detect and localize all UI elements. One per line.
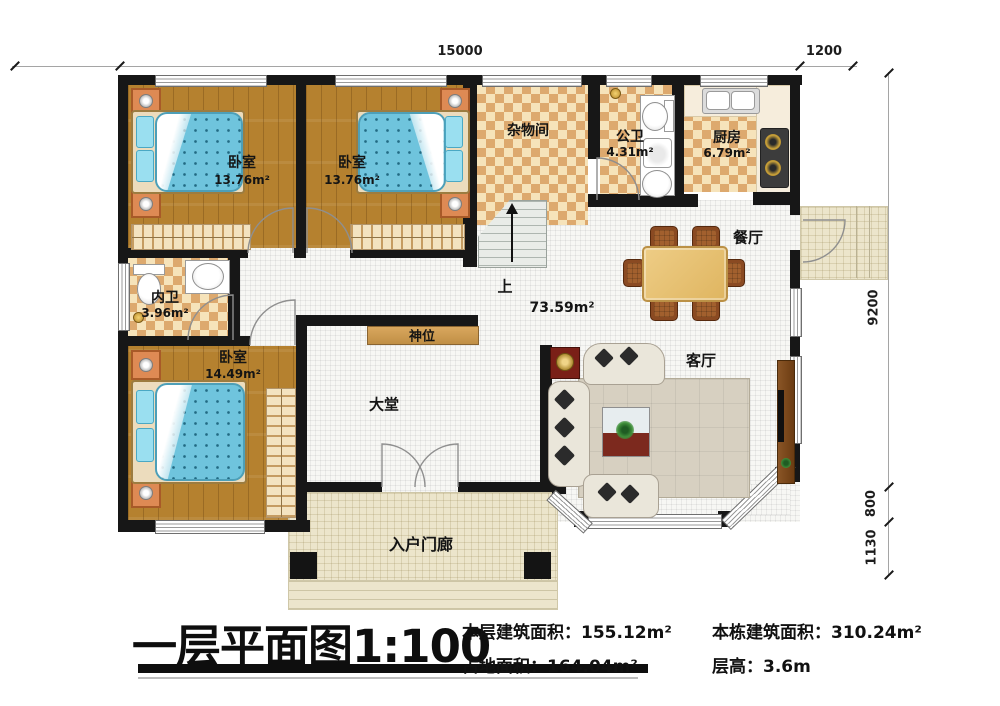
wall-hall-top (296, 315, 478, 326)
stairs-arrow-line (511, 212, 513, 262)
plant-icon (781, 458, 791, 468)
window-bath-top (606, 75, 652, 87)
porch-steps (288, 580, 558, 610)
stat-value: 164.04m² (547, 657, 638, 677)
dim-line-right (888, 72, 889, 576)
bed-sheet (385, 114, 444, 190)
kitchen-sink-basin (731, 91, 755, 110)
pillow (136, 116, 154, 148)
pillow (136, 390, 154, 424)
dining-table (642, 246, 728, 302)
pillow (445, 116, 463, 148)
storage-label: 杂物间 (507, 120, 549, 140)
kitchen-label: 厨房 (713, 127, 741, 147)
window-bedroom3-bottom (155, 520, 265, 534)
window-bedroom1-top (155, 75, 267, 87)
dining-label: 餐厅 (733, 227, 763, 248)
lamp-icon (448, 94, 462, 108)
stat-value: 310.24m² (831, 623, 922, 643)
bedroom3-area: 14.49m² (205, 367, 261, 381)
wardrobe (131, 224, 251, 250)
stat-label: 本层建筑面积： (462, 623, 581, 643)
kitchen-area: 6.79m² (703, 146, 750, 160)
terrace-floor (800, 206, 888, 280)
dim-tick (884, 517, 894, 527)
bedroom3-label: 卧室 (219, 347, 247, 367)
open-area-label: 73.59m² (529, 300, 594, 316)
wall-storage-bath (588, 85, 600, 159)
stat-building-area: 本栋建筑面积：310.24m² (712, 618, 922, 643)
lamp-icon (139, 486, 153, 500)
stove-burner (765, 134, 781, 150)
toilet-icon (642, 102, 668, 131)
public-bath-area: 4.31m² (606, 145, 653, 159)
stairs-arrow-head (506, 203, 518, 214)
dim-line-top (12, 66, 857, 67)
plant-icon (616, 421, 634, 439)
window-bedroom2-top (335, 75, 447, 87)
inner-bath-area: 3.96m² (141, 306, 188, 320)
wall-bed3-right (296, 315, 307, 532)
kitchen-sink-basin (706, 91, 730, 110)
stove-burner (765, 160, 781, 176)
terrace-rail-lines (856, 206, 870, 278)
wall-bedrooms-bottom-b (294, 248, 306, 258)
hall-label: 大堂 (369, 394, 399, 415)
stat-label: 占地面积： (462, 657, 547, 677)
bed-mattress (155, 383, 245, 481)
porch-column (290, 552, 317, 579)
wardrobe (266, 388, 296, 518)
stat-value: 155.12m² (581, 623, 672, 643)
nightstand-lamp (131, 350, 161, 380)
wall-right-b (790, 250, 800, 290)
porch-label: 入户门廊 (389, 531, 453, 555)
dim-tick (884, 68, 894, 78)
stairs-up-label: 上 (497, 276, 512, 297)
sink-icon (642, 170, 672, 198)
living-label: 客厅 (686, 350, 716, 371)
bedroom1-label: 卧室 (228, 152, 256, 172)
stat-label: 层高： (712, 657, 763, 677)
lamp-icon (448, 197, 462, 211)
stat-land-area: 占地面积：164.04m² (462, 652, 638, 677)
wall-innerbath-bottom (118, 336, 250, 346)
medallion-icon (556, 353, 574, 371)
wall-hall-bottom-left (288, 482, 382, 492)
tv-icon (778, 390, 784, 442)
stat-floor-area: 本层建筑面积：155.12m² (462, 618, 672, 643)
inner-bath-label: 内卫 (151, 287, 179, 307)
sofa-bottom (583, 474, 659, 518)
pillow (445, 150, 463, 182)
title-underline-thin (138, 677, 638, 679)
window-storage-top (482, 75, 582, 87)
pillow (136, 428, 154, 462)
dim-right-height: 9200 (867, 289, 882, 325)
sink-icon (192, 263, 224, 290)
stat-value: 3.6m (763, 657, 811, 677)
public-bath-label: 公卫 (616, 126, 644, 146)
porch-column (524, 552, 551, 579)
window-dining-right (790, 288, 802, 337)
dim-top-side: 1200 (806, 44, 842, 59)
nightstand-lamp (131, 190, 161, 218)
stat-floor-height: 层高：3.6m (712, 652, 811, 677)
bed-sheet (157, 385, 217, 479)
wall-lamp-icon (610, 88, 621, 99)
dim-right-mid: 800 (864, 490, 879, 517)
nightstand-lamp (440, 190, 470, 218)
wardrobe (350, 224, 465, 250)
pillow (136, 150, 154, 182)
wall-hall-bottom-right (458, 482, 556, 492)
floorplan-canvas: 卧室 13.76m² 卧室 13.76m² 杂物间 公卫 4.31m² 厨房 6… (0, 0, 1000, 706)
dim-tick (884, 570, 894, 580)
lamp-icon (139, 197, 153, 211)
bed-sheet (157, 114, 216, 190)
wall-right-a (790, 75, 800, 215)
lamp-icon (139, 94, 153, 108)
bedroom2-label: 卧室 (338, 152, 366, 172)
dim-top-width: 15000 (437, 44, 482, 59)
lamp-icon (139, 358, 153, 372)
dim-tick (884, 482, 894, 492)
bedroom2-area: 13.76m² (324, 173, 380, 187)
shrine-label: 神位 (409, 326, 435, 345)
window-innerbath-left (118, 263, 130, 331)
bedroom1-area: 13.76m² (214, 173, 270, 187)
stat-label: 本栋建筑面积： (712, 623, 831, 643)
wall-bed1-bed2 (296, 85, 306, 257)
window-kitchen-top (700, 75, 768, 87)
dim-right-low: 1130 (865, 529, 880, 565)
